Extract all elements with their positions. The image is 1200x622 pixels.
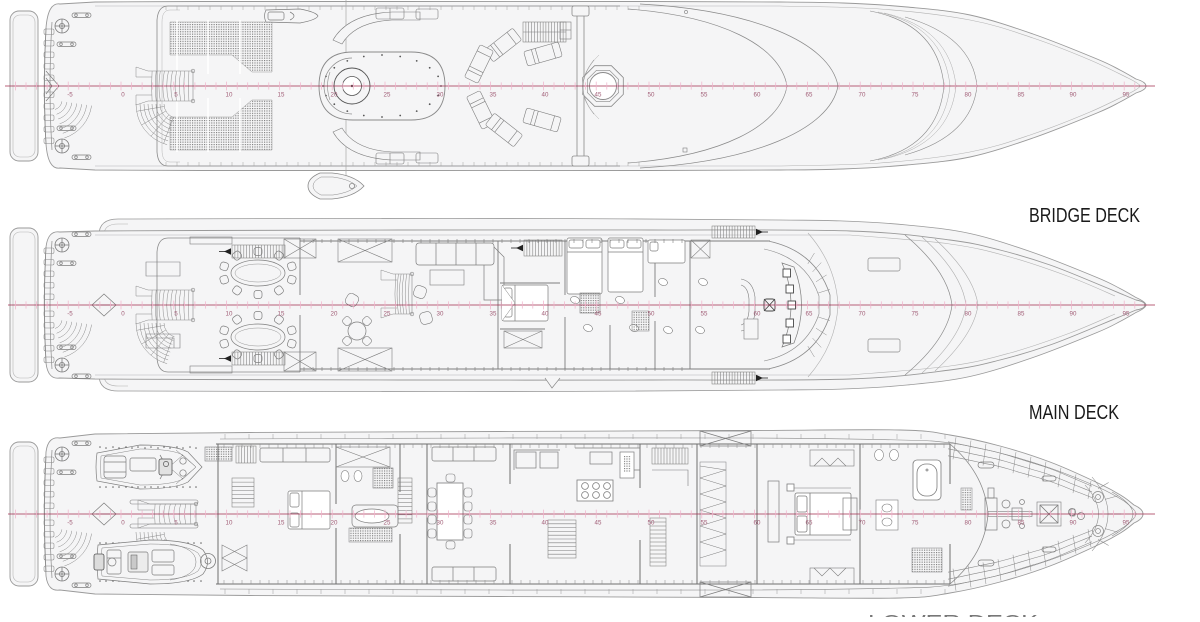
svg-text:50: 50 xyxy=(648,311,655,318)
svg-text:65: 65 xyxy=(806,92,813,99)
svg-text:0: 0 xyxy=(121,311,125,318)
svg-text:50: 50 xyxy=(648,520,655,527)
svg-text:85: 85 xyxy=(1018,92,1025,99)
svg-text:30: 30 xyxy=(437,92,444,99)
svg-text:80: 80 xyxy=(965,520,972,527)
svg-text:70: 70 xyxy=(859,92,866,99)
svg-text:MAIN DECK: MAIN DECK xyxy=(1029,402,1120,424)
svg-text:55: 55 xyxy=(701,311,708,318)
svg-text:85: 85 xyxy=(1018,520,1025,527)
svg-text:70: 70 xyxy=(859,520,866,527)
svg-text:95: 95 xyxy=(1123,311,1130,318)
svg-text:5: 5 xyxy=(174,92,178,99)
svg-text:20: 20 xyxy=(331,311,338,318)
svg-text:35: 35 xyxy=(490,520,497,527)
svg-text:10: 10 xyxy=(226,311,233,318)
svg-text:BRIDGE DECK: BRIDGE DECK xyxy=(1029,205,1141,227)
svg-text:30: 30 xyxy=(437,520,444,527)
svg-text:75: 75 xyxy=(912,520,919,527)
svg-text:25: 25 xyxy=(384,520,391,527)
svg-text:15: 15 xyxy=(278,92,285,99)
svg-text:45: 45 xyxy=(595,311,602,318)
svg-text:40: 40 xyxy=(542,92,549,99)
svg-text:-5: -5 xyxy=(67,311,73,318)
svg-text:25: 25 xyxy=(384,311,391,318)
svg-text:75: 75 xyxy=(912,311,919,318)
svg-text:95: 95 xyxy=(1123,92,1130,99)
svg-text:90: 90 xyxy=(1070,92,1077,99)
svg-text:15: 15 xyxy=(278,311,285,318)
svg-text:75: 75 xyxy=(912,92,919,99)
svg-text:35: 35 xyxy=(490,92,497,99)
svg-text:30: 30 xyxy=(437,311,444,318)
svg-text:35: 35 xyxy=(490,311,497,318)
svg-text:90: 90 xyxy=(1070,520,1077,527)
svg-text:80: 80 xyxy=(965,311,972,318)
svg-text:10: 10 xyxy=(226,520,233,527)
svg-text:65: 65 xyxy=(806,311,813,318)
svg-text:60: 60 xyxy=(754,311,761,318)
svg-text:10: 10 xyxy=(226,92,233,99)
svg-text:45: 45 xyxy=(595,92,602,99)
svg-text:60: 60 xyxy=(754,520,761,527)
svg-text:50: 50 xyxy=(648,92,655,99)
svg-text:85: 85 xyxy=(1018,311,1025,318)
svg-text:20: 20 xyxy=(331,92,338,99)
svg-text:65: 65 xyxy=(806,520,813,527)
svg-text:70: 70 xyxy=(859,311,866,318)
svg-text:55: 55 xyxy=(701,520,708,527)
svg-text:20: 20 xyxy=(331,520,338,527)
svg-text:0: 0 xyxy=(121,520,125,527)
svg-text:5: 5 xyxy=(174,311,178,318)
svg-text:LOWER DECK: LOWER DECK xyxy=(868,612,1039,617)
svg-text:-5: -5 xyxy=(67,92,73,99)
svg-text:80: 80 xyxy=(965,92,972,99)
svg-text:5: 5 xyxy=(174,520,178,527)
svg-text:90: 90 xyxy=(1070,311,1077,318)
svg-text:0: 0 xyxy=(121,92,125,99)
svg-text:-5: -5 xyxy=(67,520,73,527)
svg-text:95: 95 xyxy=(1123,520,1130,527)
svg-text:45: 45 xyxy=(595,520,602,527)
svg-text:60: 60 xyxy=(754,92,761,99)
svg-text:40: 40 xyxy=(542,311,549,318)
svg-text:40: 40 xyxy=(542,520,549,527)
svg-text:15: 15 xyxy=(278,520,285,527)
svg-text:25: 25 xyxy=(384,92,391,99)
svg-text:55: 55 xyxy=(701,92,708,99)
